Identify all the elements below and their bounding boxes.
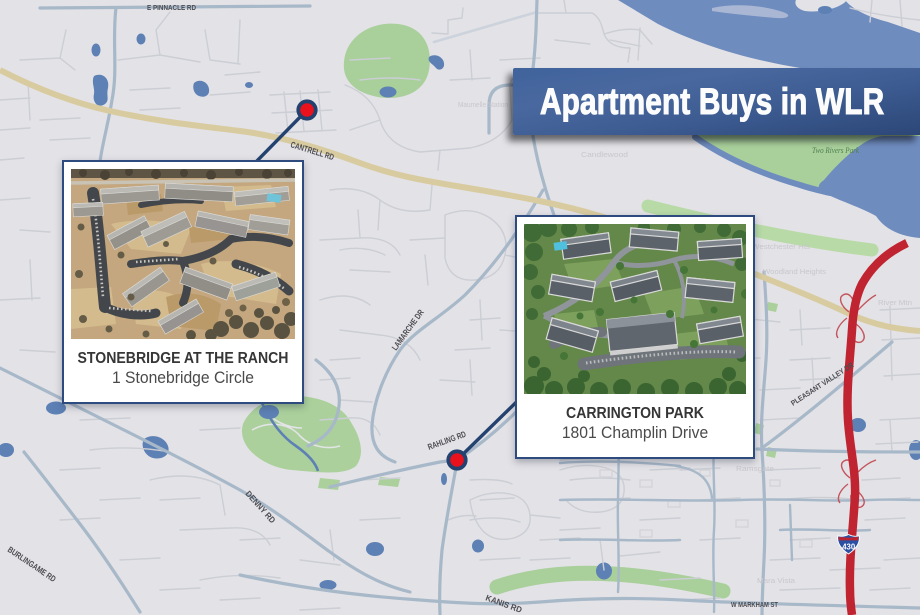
svg-text:Two Rivers Park: Two Rivers Park (812, 146, 859, 155)
svg-text:Maumelle Station: Maumelle Station (458, 102, 508, 109)
svg-text:430: 430 (842, 543, 856, 552)
svg-text:Mara Vista: Mara Vista (757, 578, 795, 585)
svg-text:River Mtn: River Mtn (878, 300, 912, 307)
svg-text:W MARKHAM ST: W MARKHAM ST (731, 602, 779, 609)
svg-text:Woodland Heights: Woodland Heights (763, 269, 827, 276)
svg-text:Ramsgate: Ramsgate (736, 466, 774, 473)
svg-text:Westchester Hts: Westchester Hts (752, 244, 811, 251)
svg-text:E PINNACLE RD: E PINNACLE RD (147, 3, 196, 12)
svg-text:Candlewood: Candlewood (581, 152, 628, 159)
